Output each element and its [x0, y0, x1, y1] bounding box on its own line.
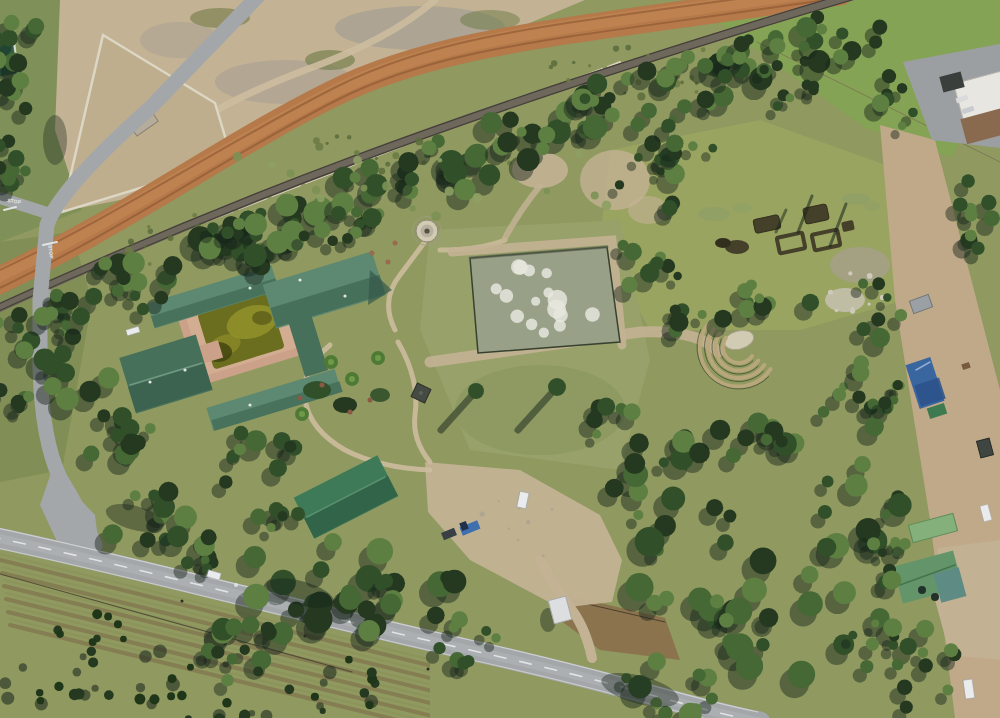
utility-poles [181, 600, 184, 603]
roadside-marker [234, 583, 238, 587]
forest-right [625, 573, 653, 601]
trees-top-right [773, 101, 782, 110]
parking-speckle [507, 527, 510, 530]
trees-roadside [140, 532, 156, 548]
chimneys [183, 368, 186, 371]
trees-cottage [899, 538, 911, 550]
trees-garden-right [708, 144, 717, 153]
debris-rocks [868, 302, 871, 305]
trees-corner-bldg [890, 130, 899, 139]
trees-north-of-complex [243, 244, 266, 267]
forest-right [693, 668, 706, 681]
trees-west-of-complex [79, 381, 101, 403]
trees-top-left [9, 54, 27, 72]
forest-right [918, 658, 932, 672]
forest-right [737, 429, 754, 446]
trees-north-of-complex [291, 239, 303, 251]
scrub-band [148, 262, 152, 266]
forest-right [833, 388, 847, 402]
trees-east-parking [659, 457, 669, 467]
debris-rocks [851, 307, 854, 310]
trees-south-mass [261, 625, 276, 640]
trees-blue-shed [878, 396, 891, 409]
trees-top-right [752, 73, 762, 83]
parking-speckle [480, 511, 485, 516]
trees-east-parking [605, 479, 624, 498]
trees-cottage [848, 631, 857, 640]
chimneys [248, 286, 251, 289]
trees-amphitheatre [714, 310, 732, 328]
forest-right [900, 701, 913, 714]
trees-west-of-complex [131, 435, 146, 450]
tree-belt [872, 20, 887, 35]
trees-garden [234, 426, 249, 441]
scrub-band [646, 54, 649, 57]
trees-east-parking [661, 487, 685, 511]
trees-south-mass [380, 594, 401, 615]
trees-west-of-complex [56, 388, 79, 411]
debris-rocks [828, 290, 833, 295]
trees-north-of-complex [233, 229, 244, 240]
trees-amphitheatre [746, 279, 757, 290]
trees-garden-right [656, 167, 664, 175]
forest-right [759, 608, 778, 627]
tree-belt [154, 291, 168, 305]
trees-garden-right [615, 180, 624, 189]
parking-speckle [550, 508, 553, 511]
trees-right-edge [953, 197, 968, 212]
scrub-band [168, 235, 174, 241]
flower-accents [368, 398, 373, 403]
trees-cottage [882, 570, 901, 589]
trees-garden [234, 443, 246, 455]
trees-garden [219, 475, 233, 489]
enclosure-white-patches [539, 328, 549, 338]
trees-right-edge [965, 230, 977, 242]
trees-amphitheatre [698, 310, 707, 319]
trees-top-left [19, 102, 32, 115]
trees-north-of-complex [320, 244, 331, 255]
flower-bed [303, 381, 331, 399]
trees-south-mass [221, 674, 233, 686]
trees-south-mass [242, 616, 260, 634]
chimneys [343, 294, 346, 297]
trees-west-of-complex [43, 363, 56, 376]
enclosure-white-patches [513, 260, 528, 275]
forest-right [798, 591, 823, 616]
trees-road-overhang [457, 657, 470, 670]
tree-belt [772, 60, 783, 71]
eucalyptus-glints [268, 161, 276, 169]
tree-belt [122, 252, 144, 274]
scrub-band [313, 137, 320, 144]
trees-roadside [181, 556, 194, 569]
parking-speckle [517, 539, 520, 542]
trees-garden-right [640, 264, 659, 283]
tree-belt [137, 303, 149, 315]
conifers-stray [89, 638, 97, 646]
picnic-tables [386, 260, 391, 265]
trees-east-parking [585, 438, 595, 448]
trees-south-mass [244, 546, 266, 568]
forest-right [635, 527, 665, 557]
forest-right [710, 420, 730, 440]
trees-blue-shed [870, 328, 890, 348]
scrub-band [566, 78, 571, 83]
trees-roadside [159, 482, 179, 502]
trees-east-parking [651, 466, 662, 477]
trees-west-of-complex [145, 423, 156, 434]
water-tubs [931, 593, 939, 601]
scrub-band [416, 138, 424, 146]
enclosure-white-patches [510, 309, 524, 323]
scrub-band [326, 142, 329, 145]
tree-belt [604, 92, 616, 104]
forest-right [750, 547, 777, 574]
eucalyptus-glints [409, 205, 415, 211]
enclosure-white-patches [543, 288, 553, 298]
trees-west-of-complex [61, 320, 71, 330]
chimneys [148, 380, 151, 383]
trees-cottage [891, 537, 900, 546]
trees-west-of-complex [97, 409, 110, 422]
trees-amphitheatre [802, 294, 819, 311]
enclosure-white-patches [554, 320, 566, 332]
picnic-tables [393, 241, 398, 246]
fountain-center [424, 228, 429, 233]
tree-belt [454, 179, 476, 201]
conifers-stray [56, 630, 64, 638]
conifer-shadows [73, 668, 82, 677]
road-tree-shade [43, 115, 67, 165]
trees-cottage [866, 637, 879, 650]
trees-chapel-west [278, 511, 288, 521]
trees-north-of-complex [207, 222, 219, 234]
tree-belt [536, 142, 549, 155]
trees-garden-right [673, 272, 682, 281]
trees-cottage [841, 639, 851, 649]
conifers [177, 691, 187, 701]
trees-roadside [130, 490, 141, 501]
eucalyptus-glints [438, 158, 442, 162]
scrub-band [378, 168, 385, 175]
trees-corner-bldg [897, 83, 907, 93]
trees-amphitheatre [895, 309, 907, 321]
trees-right-edge [981, 195, 996, 210]
debris-area [830, 247, 890, 283]
scrub-band [143, 245, 146, 248]
tree-belt [85, 288, 102, 305]
forest-right [801, 566, 819, 584]
trees-garden [245, 430, 267, 452]
trees-road-overhang [481, 626, 491, 636]
forest-right [845, 474, 868, 497]
tree-belt [398, 152, 418, 172]
trees-chapel-west [291, 507, 305, 521]
scrub-band [588, 64, 591, 67]
forest-right [864, 417, 884, 437]
trees-roadside [148, 490, 160, 502]
trees-south-mass [313, 561, 330, 578]
trees-garden [284, 440, 296, 452]
trees-top-left [4, 15, 20, 31]
enclosure-white-patches [526, 319, 538, 331]
trees-north-of-complex [331, 206, 346, 221]
forest-right [647, 652, 665, 670]
trees-west-of-complex [56, 363, 75, 382]
conifer-shadows [80, 653, 87, 660]
trees-blue-shed [852, 364, 870, 382]
trees-top-right [743, 34, 754, 45]
flower-bed [333, 397, 357, 413]
trees-north-of-complex [299, 230, 310, 241]
conifers [104, 690, 114, 700]
tree-belt [769, 38, 785, 54]
trees-garden-right [662, 200, 678, 216]
tree-belt [98, 257, 112, 271]
eucalyptus-glints [591, 191, 599, 199]
water-tubs [918, 586, 926, 594]
trees-chapel-west [250, 509, 266, 525]
trees-north-of-complex [362, 208, 381, 227]
conifers [149, 694, 159, 704]
trees-south-mass [379, 574, 394, 589]
trees-left-mid [14, 403, 24, 413]
trees-cottage [871, 557, 881, 567]
forest-right [818, 505, 832, 519]
forest-right [916, 620, 934, 638]
conifer-shadows [320, 679, 328, 687]
trees-north-of-complex [221, 226, 234, 239]
utility-poles [304, 635, 307, 638]
trees-cottage [878, 548, 887, 557]
tree-belt [697, 91, 715, 109]
sage-bush [864, 201, 880, 211]
conifers-stray [120, 636, 127, 643]
trees-cottage [883, 618, 902, 637]
forest-right [935, 693, 947, 705]
trees-chapel-west [259, 532, 269, 542]
conifer-shadows [323, 666, 337, 680]
trees-south-mass [243, 584, 269, 610]
trees-roadside [167, 526, 189, 548]
trees-south-mass [427, 606, 445, 624]
enclosure-white-patches [531, 297, 540, 306]
trees-roadside [201, 529, 217, 545]
conifer-shadows [19, 663, 27, 671]
tree-belt [130, 290, 141, 301]
sage-bush [698, 207, 730, 221]
eucalyptus-glints [353, 156, 362, 165]
eucalyptus-glints [382, 181, 391, 190]
trees-east-parking [626, 518, 637, 529]
palm-crowns [375, 355, 381, 361]
trees-amphitheatre [851, 287, 862, 298]
forest-right [942, 684, 953, 695]
trees-west-of-complex [54, 345, 72, 363]
trees-south-mass [324, 533, 342, 551]
forest-right [736, 652, 763, 679]
trees-cottage [860, 660, 873, 673]
trees-amphitheatre [754, 294, 764, 304]
trees-roadside [195, 572, 206, 583]
eucalyptus-glints [287, 169, 295, 177]
trees-road-overhang [491, 633, 500, 642]
conifer-shadows [92, 685, 99, 692]
forest-right [723, 510, 736, 523]
conifers-stray [104, 613, 112, 621]
trees-garden-right [618, 240, 629, 251]
conifers [36, 689, 43, 696]
trees-amphitheatre [669, 313, 688, 332]
trees-amphitheatre [738, 300, 756, 318]
trees-south-mass [358, 620, 380, 642]
trees-garden [269, 459, 287, 477]
scrub-band [347, 135, 351, 139]
scrub-band [680, 80, 684, 84]
trees-left-mid [11, 307, 28, 324]
trees-garden-right [681, 150, 691, 160]
conifers [73, 688, 84, 699]
forest-right [888, 493, 912, 517]
forest-right [659, 591, 674, 606]
trees-west-of-complex [34, 307, 53, 326]
eucalyptus-glints [312, 186, 321, 195]
trees-garden-right [661, 119, 675, 133]
trees-top-right [785, 94, 794, 103]
forest-right [818, 406, 830, 418]
trees-blue-shed [893, 380, 903, 390]
palm-crowns [299, 411, 305, 417]
eucalyptus-glints [575, 150, 583, 158]
trees-south-mass [367, 538, 394, 565]
tree-belt [497, 132, 518, 153]
eucalyptus-glints [361, 185, 368, 192]
aerial-photo-canvas: STOPSTOP [0, 0, 1000, 718]
palm-crowns [349, 376, 355, 382]
trees-left-edge [20, 166, 31, 177]
tree-belt [637, 61, 656, 80]
scrub-band [148, 229, 153, 234]
tree-belt [792, 65, 803, 76]
scrub-band [192, 213, 196, 217]
eucalyptus-glints [431, 211, 441, 221]
trees-east-parking [592, 430, 601, 439]
conifers [167, 692, 175, 700]
trees-top-right [765, 110, 775, 120]
tree-belt [245, 213, 267, 235]
tree-belt [116, 271, 130, 285]
trees-north-of-complex [314, 221, 331, 238]
trees-roadside [201, 555, 210, 564]
trees-north-of-complex [327, 235, 338, 246]
trees-corner-bldg [898, 121, 907, 130]
tree-belt [351, 207, 362, 218]
trees-road-overhang [433, 642, 445, 654]
trees-garden-right [634, 153, 643, 162]
trees-amphitheatre [871, 312, 885, 326]
eucalyptus-glints [473, 193, 483, 203]
trees-right-edge [961, 174, 974, 187]
tree-belt [163, 256, 182, 275]
trees-south-mass [240, 645, 250, 655]
trees-north-of-complex [342, 233, 353, 244]
aerial-photograph: STOPSTOP [0, 0, 1000, 718]
trees-right-edge [984, 210, 1000, 226]
scrub-band [695, 90, 699, 94]
tree-belt [502, 111, 519, 128]
trees-east-parking [624, 453, 645, 474]
lawn-tree [548, 378, 566, 396]
flower-accents [348, 410, 353, 415]
trees-road-overhang [484, 642, 494, 652]
palm-crowns [328, 359, 334, 365]
scrub-band [572, 61, 576, 65]
forest-right [710, 594, 724, 608]
conifers [187, 664, 194, 671]
conifers [253, 666, 263, 676]
forest-right [944, 643, 958, 657]
flower-bed [370, 388, 390, 402]
trees-roadside [174, 506, 197, 529]
conifers [134, 694, 145, 705]
trees-east-parking [623, 403, 640, 420]
trees-amphitheatre [876, 302, 885, 311]
trees-east-parking [586, 412, 603, 429]
trees-cottage [864, 628, 873, 637]
trees-left-edge [8, 150, 25, 167]
eucalyptus-glints [445, 186, 454, 195]
debris-rocks [867, 273, 873, 279]
scrub-band [385, 162, 390, 167]
trees-top-right [718, 69, 733, 84]
trees-south-mass [251, 650, 271, 670]
forest-right [726, 448, 741, 463]
forest-right [706, 692, 718, 704]
forest-right [897, 680, 912, 695]
tree-belt [276, 194, 299, 217]
forest-right [742, 577, 767, 602]
trees-garden-right [688, 141, 698, 151]
trees-corner-bldg [882, 69, 896, 83]
conifers [360, 688, 370, 698]
trees-left-mid [15, 341, 33, 359]
tree-belt [676, 60, 687, 71]
conifers [87, 647, 96, 656]
enclosure-white-patches [491, 283, 502, 294]
tree-belt [816, 24, 827, 35]
scrub-band [549, 65, 553, 69]
flower-accents [298, 396, 303, 401]
trees-road-overhang [451, 611, 468, 628]
tree-belt [791, 50, 803, 62]
tree-belt [122, 299, 134, 311]
trees-west-of-complex [54, 329, 65, 340]
trees-amphitheatre [858, 279, 868, 289]
gazebo-finial [419, 391, 423, 395]
conifers [54, 682, 63, 691]
trees-garden-right [621, 277, 637, 293]
trees-west-of-complex [110, 428, 124, 442]
trees-amphitheatre [690, 319, 700, 329]
tree-belt [630, 117, 645, 132]
tree-belt [112, 285, 124, 297]
trees-chapel-west [267, 523, 276, 532]
scrub-band [392, 152, 399, 159]
tree-belt [836, 27, 848, 39]
conifers-stray [114, 620, 122, 628]
tree-belt [422, 140, 437, 155]
